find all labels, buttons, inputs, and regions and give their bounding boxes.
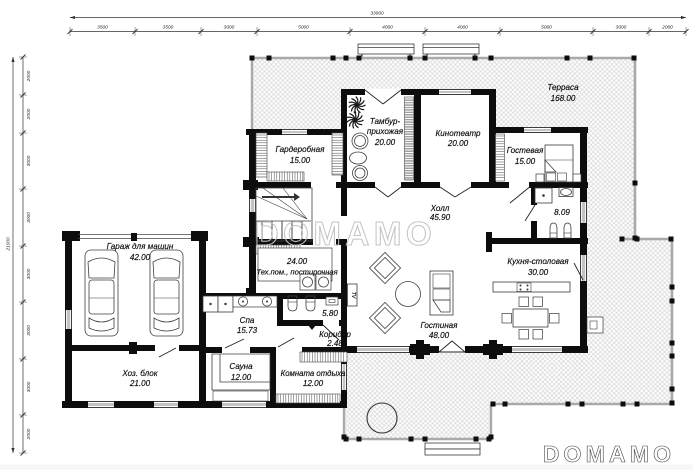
svg-text:20.00: 20.00 (447, 139, 469, 148)
svg-text:3000: 3000 (26, 268, 32, 279)
svg-text:Тамбур-: Тамбур- (370, 117, 401, 126)
svg-text:Гардеробная: Гардеробная (276, 145, 326, 154)
svg-text:3000: 3000 (26, 212, 32, 223)
svg-text:TV: TV (350, 292, 356, 299)
svg-text:DOMAMO: DOMAMO (255, 215, 437, 252)
svg-text:15.00: 15.00 (290, 156, 311, 165)
svg-text:Кинотеатр: Кинотеатр (435, 129, 481, 138)
svg-text:2000: 2000 (26, 108, 32, 120)
svg-text:3000: 3000 (224, 25, 235, 31)
svg-text:прихожая: прихожая (367, 127, 404, 136)
svg-text:Комната отдыха: Комната отдыха (281, 369, 346, 378)
svg-text:12.00: 12.00 (303, 379, 324, 388)
svg-text:21.00: 21.00 (129, 379, 151, 388)
svg-text:2000: 2000 (661, 25, 673, 31)
svg-text:48.00: 48.00 (429, 331, 450, 340)
svg-text:4000: 4000 (382, 25, 393, 31)
svg-text:24.00: 24.00 (286, 257, 308, 266)
svg-text:3000: 3000 (616, 25, 627, 31)
svg-text:168.00: 168.00 (551, 94, 576, 103)
svg-text:2.48: 2.48 (326, 339, 343, 348)
svg-text:3000: 3000 (26, 155, 32, 166)
svg-text:Сауна: Сауна (229, 362, 253, 371)
svg-text:Тех.пом., постирочная: Тех.пом., постирочная (256, 268, 337, 277)
svg-text:8.09: 8.09 (554, 208, 570, 217)
svg-text:42.00: 42.00 (130, 253, 151, 262)
svg-text:Гостевая: Гостевая (507, 146, 544, 155)
svg-text:5.80: 5.80 (322, 309, 338, 318)
svg-text:12.00: 12.00 (231, 373, 252, 382)
svg-text:21000: 21000 (6, 237, 12, 252)
svg-text:Терраса: Терраса (547, 83, 579, 92)
svg-text:Гараж для машин: Гараж для машин (107, 242, 174, 251)
svg-text:Гостиная: Гостиная (420, 321, 458, 330)
svg-text:Спа: Спа (240, 316, 255, 325)
svg-text:3500: 3500 (163, 25, 174, 31)
svg-text:Кухня-столовая: Кухня-столовая (507, 257, 569, 266)
svg-text:33000: 33000 (370, 11, 384, 17)
svg-text:4000: 4000 (457, 25, 468, 31)
svg-text:20.00: 20.00 (374, 138, 396, 147)
svg-text:3500: 3500 (97, 25, 108, 31)
svg-text:Хоз. блок: Хоз. блок (121, 369, 158, 378)
svg-text:5000: 5000 (298, 25, 309, 31)
svg-text:2000: 2000 (26, 70, 32, 82)
svg-text:30.00: 30.00 (528, 268, 549, 277)
svg-text:3000: 3000 (26, 325, 32, 336)
svg-text:15.73: 15.73 (237, 326, 258, 335)
svg-text:15.00: 15.00 (515, 157, 536, 166)
svg-text:Холл: Холл (430, 204, 450, 213)
svg-text:3000: 3000 (26, 381, 32, 392)
svg-text:2000: 2000 (26, 428, 32, 440)
svg-text:Коридор: Коридор (319, 330, 351, 339)
svg-text:5000: 5000 (541, 25, 552, 31)
svg-text:DOMAMO: DOMAMO (543, 441, 676, 467)
